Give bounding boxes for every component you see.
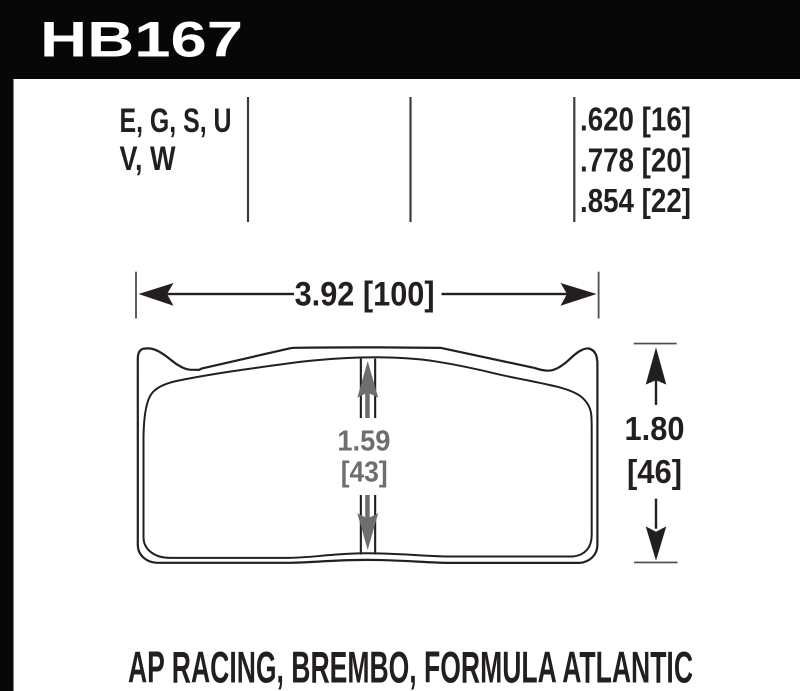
svg-text:HB167: HB167 (40, 11, 243, 68)
svg-text:3.92 [100]: 3.92 [100] (295, 275, 435, 313)
svg-text:V, W: V, W (120, 140, 177, 178)
svg-text:.620 [16]: .620 [16] (580, 101, 691, 138)
svg-text:1.80: 1.80 (625, 410, 685, 447)
svg-text:E, G, S, U: E, G, S, U (120, 102, 232, 140)
svg-text:.778 [20]: .778 [20] (580, 143, 691, 180)
svg-text:[46]: [46] (627, 453, 682, 490)
svg-text:1.59: 1.59 (337, 425, 390, 457)
svg-text:[43]: [43] (341, 456, 388, 488)
svg-text:AP RACING, BREMBO, FORMULA ATL: AP RACING, BREMBO, FORMULA ATLANTIC (128, 644, 693, 691)
svg-text:.854 [22]: .854 [22] (580, 183, 691, 220)
